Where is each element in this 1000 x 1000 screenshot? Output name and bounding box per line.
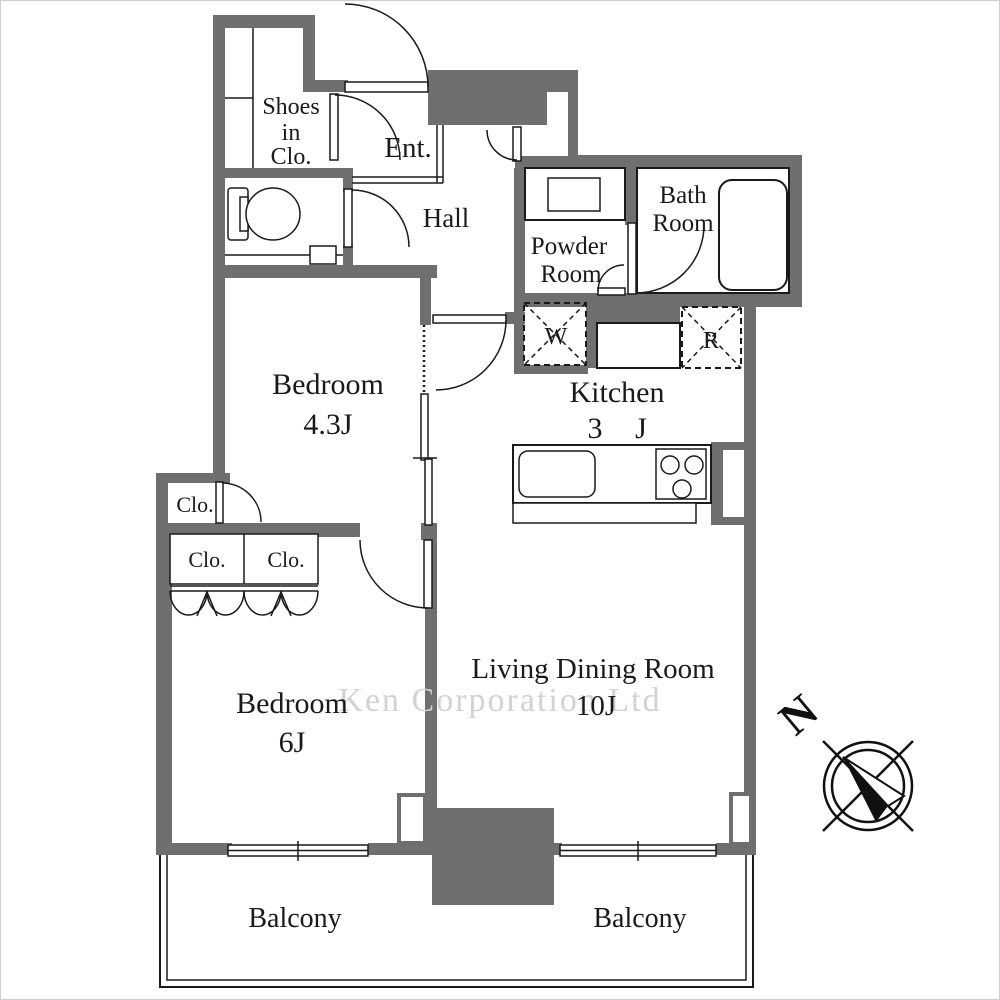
label-closet-small: Clo. xyxy=(176,492,213,517)
pillar xyxy=(432,808,554,905)
label-balcony-left: Balcony xyxy=(248,903,341,934)
floor-plan: Ken Corporation Ltd Shoes in Clo. Ent. H… xyxy=(0,0,1000,1000)
label-shoes-closet-2: in xyxy=(282,120,301,146)
pipe-space-right xyxy=(731,794,751,844)
label-powder-room-1: Powder xyxy=(531,233,608,260)
label-living-dining: Living Dining Room xyxy=(471,653,715,685)
label-bath-room-2: Room xyxy=(652,210,714,237)
kitchen-cabinet xyxy=(597,323,680,368)
label-kitchen: Kitchen xyxy=(570,376,665,409)
kitchen-counter xyxy=(513,445,711,523)
label-bedroom43-size: 4.3J xyxy=(303,408,353,441)
label-closet-left: Clo. xyxy=(188,547,225,572)
label-kitchen-size-left: 3 xyxy=(588,412,603,445)
kitchen-sink-icon xyxy=(519,451,595,497)
floor-plan-page: Ken Corporation Ltd Shoes in Clo. Ent. H… xyxy=(0,0,1000,1000)
label-kitchen-size-right: J xyxy=(635,412,647,445)
label-powder-room-2: Room xyxy=(540,261,602,288)
label-balcony-right: Balcony xyxy=(593,903,686,934)
label-bedroom6: Bedroom xyxy=(236,687,348,720)
bathtub-icon xyxy=(719,180,787,290)
stove-icon xyxy=(656,449,706,499)
label-entrance: Ent. xyxy=(384,132,432,164)
pipe-space-left xyxy=(399,795,425,843)
label-bedroom6-size: 6J xyxy=(279,726,306,759)
label-hall: Hall xyxy=(423,203,470,233)
label-bath-room-1: Bath xyxy=(659,182,707,209)
label-closet-right: Clo. xyxy=(267,547,304,572)
label-shoes-closet-1: Shoes xyxy=(262,94,319,120)
label-living-dining-size: 10J xyxy=(576,690,616,722)
meter-box-niche xyxy=(547,92,568,156)
meter-box-niche-lower xyxy=(521,125,548,156)
label-washer: W xyxy=(545,324,568,350)
toilet-icon xyxy=(228,188,300,240)
label-fridge: R xyxy=(703,328,719,354)
powder-sink-icon xyxy=(525,168,625,220)
label-shoes-closet-3: Clo. xyxy=(271,144,312,170)
label-bedroom43: Bedroom xyxy=(272,368,384,401)
